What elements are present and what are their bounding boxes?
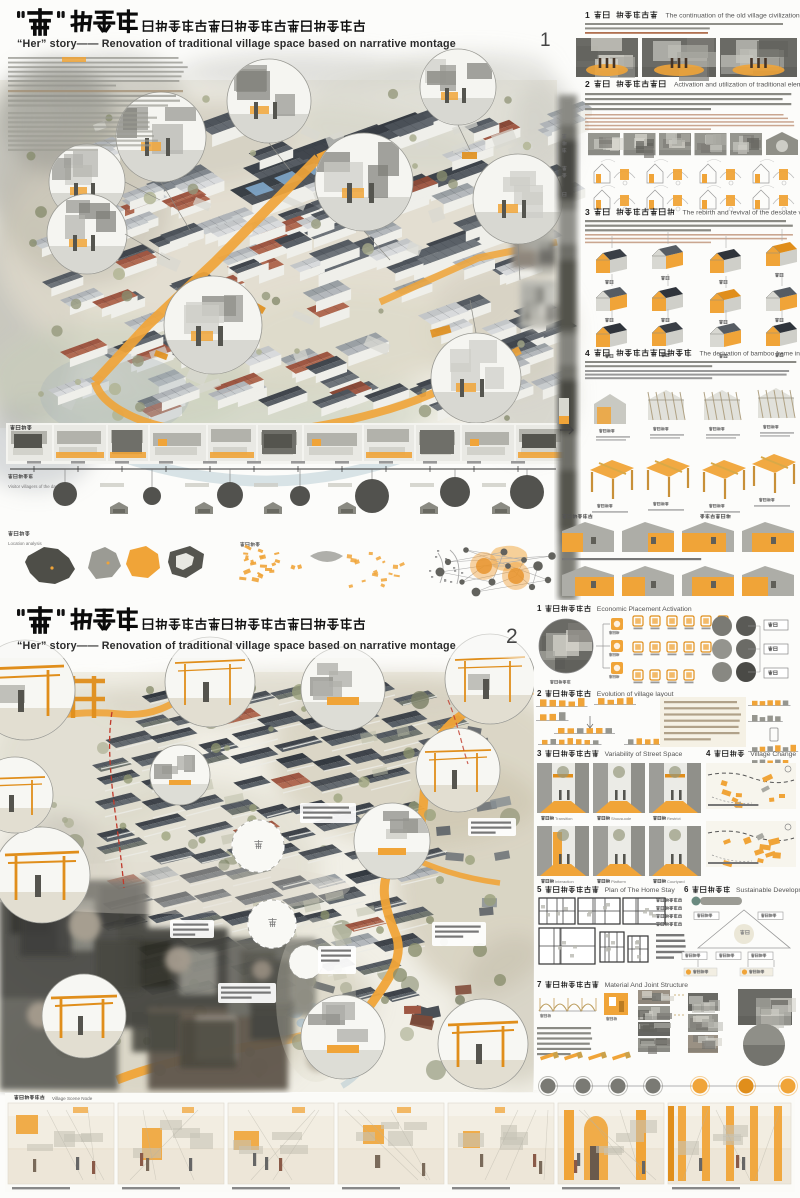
svg-text:1: 1	[540, 30, 551, 51]
svg-text:Activation and utilization of: Activation and utilization of traditiona…	[674, 82, 800, 89]
svg-text:Restrict: Restrict	[667, 816, 681, 821]
svg-text:Visitor villagers of the day: Visitor villagers of the day	[8, 484, 59, 489]
svg-text:6: 6	[684, 885, 689, 894]
svg-text:2: 2	[506, 625, 518, 648]
svg-text:Village Change: Village Change	[750, 751, 796, 758]
svg-text:Plan of The Home Stay: Plan of The Home Stay	[605, 887, 676, 894]
svg-text:Courtyard: Courtyard	[667, 879, 685, 884]
svg-text:Village Scene Node: Village Scene Node	[52, 1096, 93, 1101]
svg-text:2: 2	[585, 79, 590, 89]
svg-text:Evolution of village layout: Evolution of village layout	[597, 691, 674, 698]
svg-text:The derivation of bamboo frame: The derivation of bamboo frame in archit…	[700, 351, 800, 358]
svg-text:“Her” story—— Renovation of tr: “Her” story—— Renovation of traditional …	[17, 38, 456, 50]
svg-text:Variability of Street Space: Variability of Street Space	[605, 751, 683, 758]
svg-text:Platform: Platform	[611, 879, 627, 884]
svg-text:3: 3	[537, 749, 542, 758]
svg-text:“Her” story—— Renovation of tr: “Her” story—— Renovation of traditional …	[17, 640, 456, 652]
svg-text:Transition: Transition	[555, 816, 572, 821]
svg-text:3: 3	[585, 207, 590, 217]
svg-text:2: 2	[537, 689, 542, 698]
svg-text:1: 1	[585, 10, 590, 20]
svg-text:5: 5	[537, 885, 542, 894]
svg-text:4: 4	[585, 348, 590, 358]
svg-text:The continuation of the old vi: The continuation of the old village civi…	[666, 13, 800, 20]
svg-text:Interaction: Interaction	[555, 879, 574, 884]
svg-text:1: 1	[537, 604, 542, 613]
svg-text:7: 7	[537, 980, 542, 989]
svg-text:Economic Placement Activation: Economic Placement Activation	[597, 606, 692, 613]
svg-text:Material And Joint Structure: Material And Joint Structure	[605, 982, 689, 989]
svg-text:The rebirth and revival of the: The rebirth and revival of the desolate …	[683, 210, 800, 217]
svg-text:Shousuode: Shousuode	[611, 816, 632, 821]
svg-text:Location analysis: Location analysis	[8, 541, 42, 546]
svg-text:Sustainable Development: Sustainable Development	[736, 887, 800, 894]
svg-text:4: 4	[706, 749, 711, 758]
